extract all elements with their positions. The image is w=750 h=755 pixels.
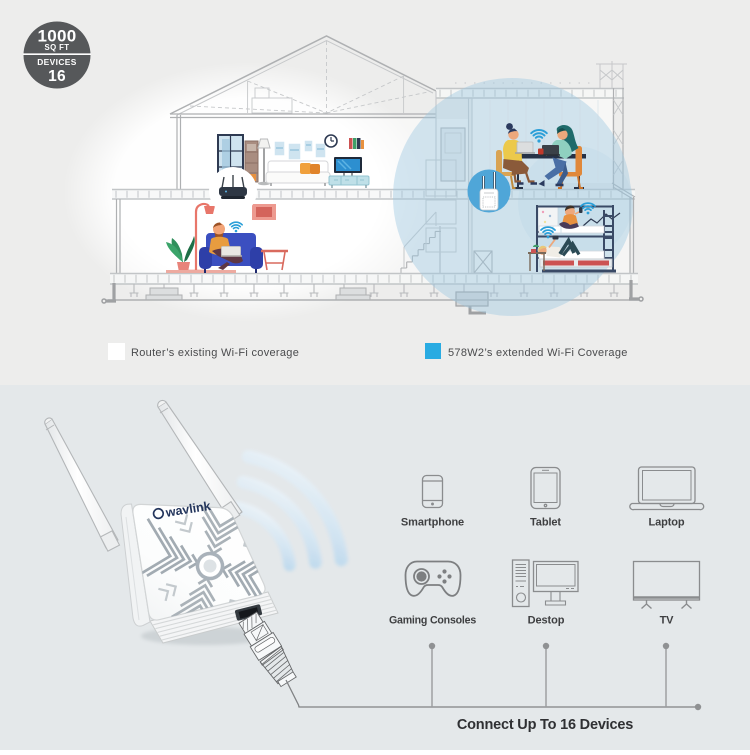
svg-text:DEVICES: DEVICES [37,57,77,67]
svg-text:Destop: Destop [528,615,565,627]
svg-text:16: 16 [48,68,66,85]
svg-text:Laptop: Laptop [648,517,684,529]
svg-text:578W2’s extended Wi-Fi Coverag: 578W2’s extended Wi-Fi Coverage [448,347,628,359]
svg-text:Connect Up To 16 Devices: Connect Up To 16 Devices [457,717,633,733]
svg-text:TV: TV [660,615,675,627]
svg-text:Smartphone: Smartphone [401,517,464,529]
svg-text:Gaming Consoles: Gaming Consoles [389,615,476,627]
svg-text:Router’s existing Wi-Fi covera: Router’s existing Wi-Fi coverage [131,347,299,359]
svg-text:SQ FT: SQ FT [45,43,70,52]
svg-text:Tablet: Tablet [530,517,561,529]
